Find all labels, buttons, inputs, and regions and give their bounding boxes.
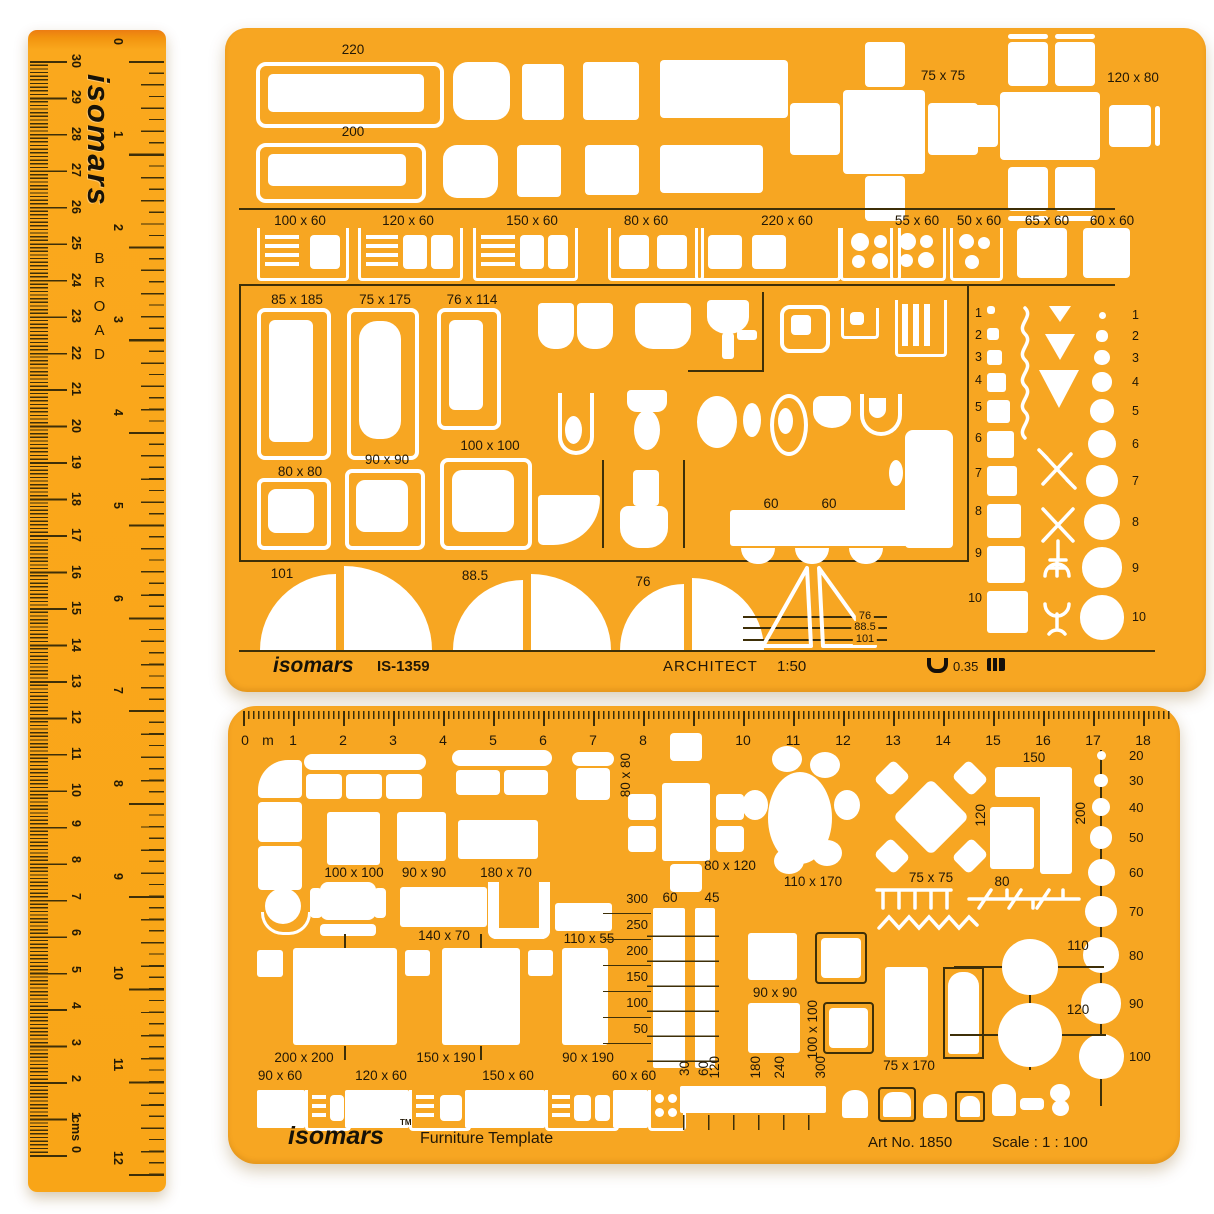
cutout-circle-step [1080, 595, 1125, 640]
cutout-toilet-side-bowl [620, 506, 668, 548]
cm-number: 10 [69, 783, 83, 797]
cutout-armchair-arm [374, 888, 386, 918]
circle-120-label: 120 [1067, 1002, 1090, 1017]
oval-table-label: 110 x 170 [784, 874, 842, 889]
cutout-bathtub-inner [359, 321, 401, 439]
cutout-basin-inner [791, 315, 811, 335]
cutout-counter-inner [990, 807, 1034, 869]
cutout-bathtub-inner [449, 320, 483, 410]
trademark: TM [400, 1118, 412, 1127]
cutout-chair [874, 760, 911, 797]
cutout-sink-unit [545, 1090, 619, 1131]
cutout-armchair-back [572, 752, 614, 766]
circle-number: 6 [1132, 437, 1139, 451]
region-line [762, 292, 764, 370]
cutout-armchair-back [320, 882, 376, 920]
cutout-square-step [987, 328, 999, 340]
chair-back-arc [1055, 34, 1095, 39]
cutout-bidet-inner [565, 416, 582, 444]
square-number: 6 [967, 431, 982, 445]
cutout-chair [874, 838, 911, 875]
cm-number: 11 [69, 747, 83, 760]
shower-label: 90 x 90 [365, 452, 409, 467]
circle-number: 8 [1132, 515, 1139, 529]
cutout-oval-small [743, 403, 761, 437]
circle-number: 7 [1132, 474, 1139, 488]
cutout-square-step [987, 431, 1014, 458]
cm-unit: cms [69, 1116, 83, 1141]
inch-number: 3 [111, 316, 125, 323]
ruler: isomars BROAD 30292827262524232221201918… [28, 30, 166, 1192]
cutout-door-arc [620, 584, 684, 650]
cm-number: 3 [69, 1039, 83, 1046]
vertical-value: 120 [707, 1056, 722, 1079]
ladder-value: 300 [603, 888, 651, 914]
electrical-symbols [1013, 304, 1079, 644]
cutout-desk [695, 228, 841, 281]
window-outline [815, 932, 867, 984]
scale-unit: m [262, 732, 274, 748]
furniture-template: 0 m 123456789101112131415161718 80 x 80 … [228, 706, 1180, 1164]
cutout-wardrobe-60 [653, 908, 685, 1068]
ladder-col-60: 60 [662, 890, 677, 905]
ladder-values: 30025020015010050 [603, 888, 651, 1044]
cutout-circle-step [1094, 350, 1109, 365]
circle-value: 50 [1129, 830, 1143, 845]
desk-label: 220 x 60 [761, 213, 813, 228]
cutout-rect-140 [400, 887, 487, 927]
ladder-value: 150 [603, 966, 651, 992]
ruler-cm-ticks [30, 61, 67, 1157]
inch-number: 8 [111, 780, 125, 787]
shower-label: 80 x 80 [278, 464, 322, 479]
cutout-circle-step [1079, 1034, 1124, 1079]
circle-number: 4 [1132, 375, 1139, 389]
circle-number: 3 [1132, 351, 1139, 365]
cutout-circle-step [1082, 547, 1123, 588]
cm-number: 27 [69, 163, 83, 177]
cutout-sofa-cushion [456, 770, 500, 795]
sofa-size-label: 80 x 80 [618, 753, 633, 797]
cm-number: 6 [69, 929, 83, 936]
rect-140-label: 140 x 70 [418, 928, 470, 943]
cutout-circle-step [1090, 399, 1114, 423]
window-outline [823, 1002, 874, 1054]
cutout-circle-step [1094, 774, 1108, 788]
cm-number: 21 [69, 382, 83, 396]
scale-number: 16 [1035, 732, 1051, 748]
scale-number: 14 [935, 732, 951, 748]
cutout-circle-step [1092, 372, 1112, 392]
inch-number: 6 [111, 595, 125, 602]
region-line [688, 370, 764, 372]
architect-template: 220 200 75 x 75 120 x 80 [225, 28, 1206, 692]
chair-back-arc [1008, 34, 1048, 39]
tub-label: 85 x 185 [271, 292, 323, 307]
cutout-stove [950, 228, 1003, 281]
cutout-bathtub-inner [269, 320, 313, 442]
circle-number: 2 [1132, 329, 1139, 343]
template-scale: 1:50 [777, 658, 806, 675]
kitchen-label: 60 x 60 [612, 1068, 656, 1083]
tick-marks [683, 1115, 833, 1130]
inch-number: 1 [111, 131, 125, 138]
bed-medium-label: 150 x 190 [416, 1050, 475, 1065]
cutout-seat-bump [889, 460, 903, 486]
cutout-sofa-cushion [386, 774, 422, 799]
cutout-oval [697, 396, 737, 448]
region-line [602, 460, 604, 548]
cm-number: 8 [69, 856, 83, 863]
circle-value: 80 [1129, 948, 1143, 963]
cutout-sofa-cushion [504, 770, 548, 795]
bed-mark [480, 934, 482, 948]
cutout-side-table [257, 950, 283, 977]
template-title: ARCHITECT [663, 658, 758, 675]
cutout-rect-180 [458, 820, 538, 859]
cutout-table-75 [843, 90, 925, 174]
inch-number: 2 [111, 224, 125, 231]
cutout-sofa-seat [258, 802, 302, 842]
cutout-chair [772, 746, 802, 772]
cutout-sink-unit [409, 1090, 471, 1131]
inch-number: 7 [111, 687, 125, 694]
square-number: 8 [967, 504, 982, 518]
table-120-label: 120 x 80 [1107, 70, 1159, 85]
cutout-table-120 [1000, 92, 1100, 160]
counter-depth-label: 120 [973, 804, 988, 827]
cutout-bed-200-inner [268, 154, 406, 186]
circle-value: 100 [1129, 1049, 1151, 1064]
cutout-counter-side [1040, 767, 1072, 874]
cutout-circle-120 [998, 1003, 1062, 1067]
desk-label: 80 x 60 [624, 213, 668, 228]
cutout-pill [992, 1084, 1016, 1116]
cutout-square-65 [1017, 228, 1067, 278]
square-number: 9 [967, 546, 982, 560]
arc-label: 88.5 [462, 568, 488, 583]
cutout-circle-step [1084, 504, 1120, 540]
chair-back-arc [1155, 106, 1160, 146]
cutout-bed-150x190 [442, 948, 520, 1045]
scale-number: 8 [639, 732, 647, 748]
inch-number: 10 [111, 966, 125, 980]
cutout-diamond-table [893, 779, 969, 855]
cutout-chair [810, 752, 840, 778]
art-number: Art No. 1850 [868, 1134, 952, 1151]
cutout-side-table [528, 950, 553, 976]
cutout-toilet-side-tank [633, 470, 659, 506]
cutout-rounded-square-2 [443, 145, 498, 198]
cutout-desk [608, 228, 704, 281]
cutout-circle-step [1097, 751, 1106, 760]
vertical-value: 300 [813, 1056, 828, 1079]
cm-number: 4 [69, 1002, 83, 1009]
cutout-wide-rect-2 [660, 145, 763, 193]
kitchen-v1: 30 [677, 1061, 692, 1076]
cutout-door-arc [260, 574, 336, 650]
product-photo: isomars BROAD 30292827262524232221201918… [0, 0, 1214, 1214]
inch-number: 4 [111, 409, 125, 416]
zigzag-symbol [877, 912, 981, 934]
desk-label: 60 x 60 [1090, 213, 1134, 228]
cutout-square-90c [748, 1003, 800, 1053]
ladder-col-45: 45 [704, 890, 719, 905]
tub-label: 76 x 114 [447, 292, 498, 307]
cutout-chair [952, 838, 989, 875]
square-number: 10 [967, 591, 982, 605]
cutout-square-step [987, 350, 1002, 365]
tri-line-label: 88.5 [851, 621, 878, 633]
ruler-series: BROAD [91, 250, 108, 370]
cutout-chair [670, 864, 702, 892]
cutout-sofa-seat [258, 846, 302, 890]
cm-number: 18 [69, 492, 83, 506]
cm-number: 30 [69, 54, 83, 68]
kitchen-label: 150 x 60 [482, 1068, 534, 1083]
cutout-square-step [987, 400, 1010, 423]
cutout-stove [890, 228, 946, 281]
scale-number: 18 [1135, 732, 1151, 748]
cutout-square-100 [327, 812, 380, 865]
window-label: 100 x 100 [805, 1000, 820, 1059]
inch-number: 5 [111, 502, 125, 509]
scale-number: 12 [835, 732, 851, 748]
cutout-toilet-tank [627, 390, 667, 412]
kitchen-label: 90 x 60 [258, 1068, 302, 1083]
cutout-chair [742, 790, 768, 820]
cutout-door-arc [344, 566, 432, 650]
cutout-armchair-seat [576, 768, 610, 800]
square-number: 5 [967, 400, 982, 414]
cutout-door-arc [531, 574, 611, 650]
cutout-v-basin-inner [869, 398, 886, 418]
door-label: 75 x 170 [883, 1058, 935, 1073]
cm-number: 23 [69, 309, 83, 323]
cm-number: 12 [69, 710, 83, 724]
cutout-desk [473, 228, 578, 281]
cutout-counter-long [680, 1086, 826, 1113]
cross-table-label: 80 x 120 [704, 858, 756, 873]
cm-number: 13 [69, 674, 83, 688]
cutout-counter [465, 1090, 545, 1128]
brand-logo: isomars [288, 1122, 384, 1151]
cutout-desk [257, 228, 349, 281]
seat-label: 60 [763, 496, 778, 511]
cutout-circle-step [1086, 465, 1118, 497]
table-75-label: 75 x 75 [921, 68, 965, 83]
cutout-sink-stem [722, 333, 734, 359]
cutout-chair [1008, 167, 1048, 211]
cutout-chair [956, 105, 998, 147]
bed-220-label: 220 [342, 42, 365, 57]
cutout-circle-step [1092, 798, 1110, 816]
tri-line-label: 101 [853, 633, 877, 645]
cm-number: 9 [69, 820, 83, 827]
cutout-chair [1055, 42, 1095, 86]
vertical-value: 180 [748, 1056, 763, 1079]
cutout-tall-rect [885, 967, 928, 1057]
ladder-value: 200 [603, 940, 651, 966]
square-number: 1 [967, 306, 982, 320]
cutout-oval-inner [778, 408, 793, 434]
scale-number: 5 [489, 732, 497, 748]
cutout-chair [628, 794, 656, 820]
circle-value: 20 [1129, 748, 1143, 763]
ladder-value: 50 [603, 1018, 651, 1044]
cutout-sofa-back [452, 750, 552, 766]
square-number: 7 [967, 466, 982, 480]
ruler-brand: isomars [80, 74, 116, 207]
circle-value: 70 [1129, 904, 1143, 919]
desk-label: 120 x 60 [382, 213, 434, 228]
cm-number: 19 [69, 455, 83, 469]
cutout-bar [1020, 1098, 1044, 1110]
cutout-double-circle [1052, 1100, 1069, 1116]
cutout-chair [865, 42, 905, 87]
cutout-door-arc [453, 580, 523, 650]
bed-200-label: 200 [342, 124, 365, 139]
bed-single-label: 90 x 190 [562, 1050, 614, 1065]
arch-outline [878, 1087, 916, 1122]
cutout-chair [716, 794, 744, 820]
circle-series: 2030405060708090100 [1078, 748, 1151, 1079]
cutout-l-counter [905, 430, 953, 548]
arch-outline [955, 1091, 985, 1122]
bed-mark [344, 934, 346, 948]
cutout-circle-step [1085, 896, 1117, 928]
pen-width-icon [987, 658, 1005, 671]
circle-value: 60 [1129, 865, 1143, 880]
cm-number: 22 [69, 346, 83, 360]
scale-number: 3 [389, 732, 397, 748]
cutout-sofa-cushion [346, 774, 382, 799]
cutout-chair [952, 760, 989, 797]
cutout-circle-step [1099, 312, 1106, 319]
cutout-chair [1109, 105, 1151, 147]
cutout-square [522, 64, 564, 120]
square-number: 3 [967, 350, 982, 364]
cutout-arch [923, 1094, 947, 1118]
cutout-circle-step [1090, 826, 1113, 849]
cutout-bed-220-inner [268, 74, 424, 112]
cutout-sink-tap [737, 330, 757, 340]
cutout-square-step [987, 306, 995, 314]
scale-number: 17 [1085, 732, 1101, 748]
cutout-corner-sofa [258, 760, 302, 798]
cutout-shower-inner [268, 489, 314, 533]
cutout-circle-step [1088, 859, 1115, 886]
cutout-square-2 [517, 145, 561, 197]
cm-number: 5 [69, 966, 83, 973]
kitchen-label: 120 x 60 [355, 1068, 407, 1083]
arc-label: 76 [635, 574, 650, 589]
circle-number: 5 [1132, 404, 1139, 418]
door-outline [943, 967, 984, 1059]
rect-180-label: 180 x 70 [480, 865, 532, 880]
circle-value: 40 [1129, 800, 1143, 815]
circle-value: 90 [1129, 996, 1143, 1011]
cutout-arch [842, 1090, 868, 1118]
cm-number: 14 [69, 638, 83, 652]
template-title: Furniture Template [420, 1130, 553, 1148]
inch-number: 11 [111, 1058, 125, 1071]
scale-number: 7 [589, 732, 597, 748]
cutout-radiator [895, 300, 947, 357]
scale-number: 1 [289, 732, 297, 748]
cm-number: 20 [69, 419, 83, 433]
divider-line [965, 284, 1115, 286]
cutout-u-chair [488, 882, 550, 939]
cutout-bed-90x190 [562, 948, 608, 1045]
cutout-stool-arc [261, 912, 311, 935]
cutout-sofa-back [304, 754, 426, 770]
circle-number: 10 [1132, 610, 1146, 624]
inch-number: 0 [111, 38, 125, 45]
square-90-label: 90 x 90 [402, 865, 446, 880]
cutout-toilet-bowl [634, 410, 660, 450]
diamond-table-label: 75 x 75 [909, 870, 953, 885]
desk-label: 100 x 60 [274, 213, 326, 228]
cm-number: 26 [69, 200, 83, 214]
cm-number: 25 [69, 236, 83, 250]
cutout-bed-200x200 [293, 948, 397, 1045]
cutout-armchair-front [320, 924, 376, 936]
pen-width: 0.35 [953, 659, 978, 674]
cm-number: 15 [69, 601, 83, 615]
cm-zero: 0 [69, 1146, 83, 1153]
cutout-chair [628, 826, 656, 852]
shower-label: 100 x 100 [460, 438, 519, 453]
scale-number: 2 [339, 732, 347, 748]
vertical-value: 240 [772, 1056, 787, 1079]
cutout-chair [834, 790, 860, 820]
scale-number: 15 [985, 732, 1001, 748]
desk-label: 65 x 60 [1025, 213, 1069, 228]
divider-line [239, 208, 1115, 210]
scale-number: 13 [885, 732, 901, 748]
circle-110-label: 110 [1067, 938, 1089, 953]
region-line [683, 460, 685, 548]
cutout-counter [613, 1090, 648, 1128]
cutout-chair [790, 103, 840, 155]
cutout-circle-110 [1002, 939, 1058, 995]
cm-number: 2 [69, 1075, 83, 1082]
cm-number: 29 [69, 90, 83, 104]
desk-label: 55 x 60 [895, 213, 939, 228]
cutout-wardrobe-45 [695, 908, 715, 1068]
cutout-chair [774, 848, 804, 874]
cm-number: 24 [69, 273, 83, 287]
cutout-table [662, 783, 710, 861]
cutout-rounded-square [453, 62, 510, 120]
ruler-inch-ticks [129, 61, 164, 1176]
model-number: IS-1359 [377, 658, 430, 675]
cutout-desk [358, 228, 463, 281]
circle-number: 1 [1132, 308, 1139, 322]
chair-back-arc [947, 106, 952, 146]
cutout-chair [670, 733, 702, 761]
seat-label: 60 [821, 496, 836, 511]
cutout-circle-step [1096, 330, 1107, 341]
template-scale: Scale : 1 : 100 [992, 1134, 1088, 1151]
scale-ticks [236, 711, 1172, 726]
cutout-wide-rect [660, 60, 788, 118]
bed-mark [480, 1046, 482, 1060]
pen-nib-icon [927, 658, 948, 673]
brand-logo: isomars [273, 654, 354, 678]
armchair-label: 100 x 100 [324, 865, 383, 880]
